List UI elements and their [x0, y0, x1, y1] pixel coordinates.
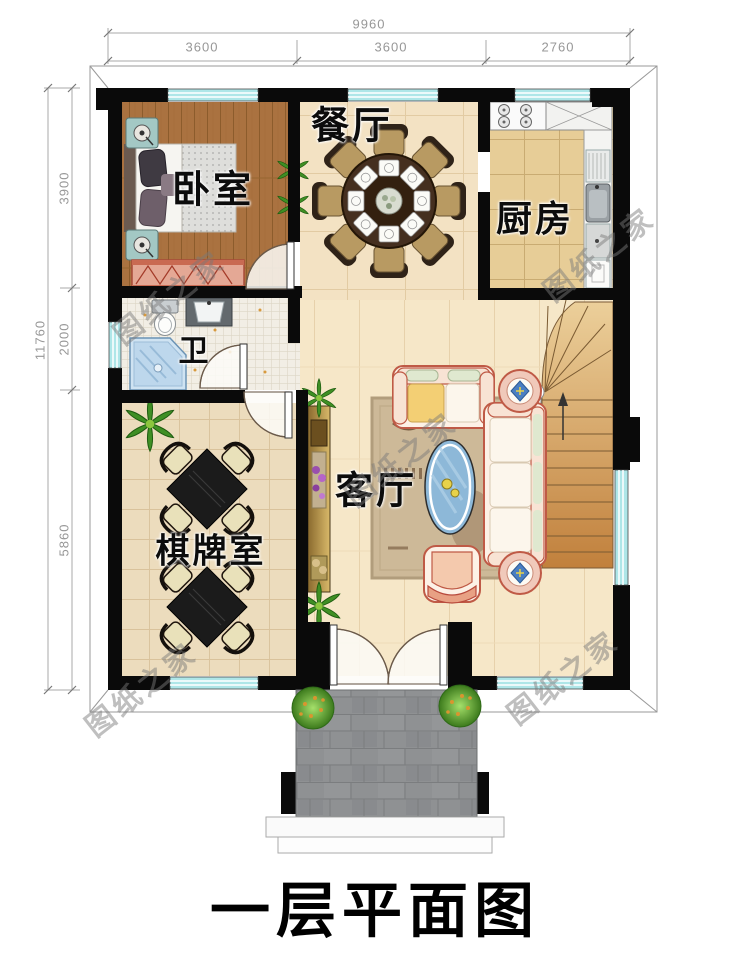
window — [615, 470, 628, 585]
sofa-three-seat — [484, 403, 546, 566]
dim-top-seg-1: 3600 — [186, 40, 219, 55]
dim-top-total: 9960 — [353, 17, 386, 32]
room-label-bath: 卫 — [179, 326, 212, 370]
dim-left-seg-1: 3900 — [57, 172, 72, 205]
room-label-bedroom: 卧室 — [172, 159, 254, 214]
bed-headboard — [124, 144, 136, 232]
dim-top-seg-3: 2760 — [542, 40, 575, 55]
bush — [439, 685, 481, 727]
dim-left-seg-3: 5860 — [57, 524, 72, 557]
plan-title: 一层平面图 — [210, 863, 540, 950]
window — [168, 89, 258, 101]
porch-step — [278, 837, 492, 853]
room-label-chess: 棋牌室 — [156, 524, 267, 573]
room-label-dining: 餐厅 — [311, 95, 393, 150]
armchair — [424, 546, 480, 603]
dim-left-seg-2: 2000 — [57, 323, 72, 356]
stove — [490, 102, 546, 130]
window — [515, 89, 590, 101]
end-table-top — [499, 370, 541, 412]
floor-plan: 9960 3600 3600 2760 11760 3900 2000 5860… — [0, 0, 750, 972]
porch-step — [266, 817, 504, 837]
porch — [266, 685, 504, 853]
dim-left-total: 11760 — [33, 320, 48, 360]
nightstand-bottom — [126, 230, 158, 260]
nightstand-top — [126, 118, 158, 148]
dim-top-seg-2: 3600 — [375, 40, 408, 55]
room-label-kitchen: 厨房 — [496, 190, 574, 242]
tv-console — [308, 406, 330, 592]
end-table-bottom — [499, 552, 541, 594]
bush — [292, 687, 334, 729]
